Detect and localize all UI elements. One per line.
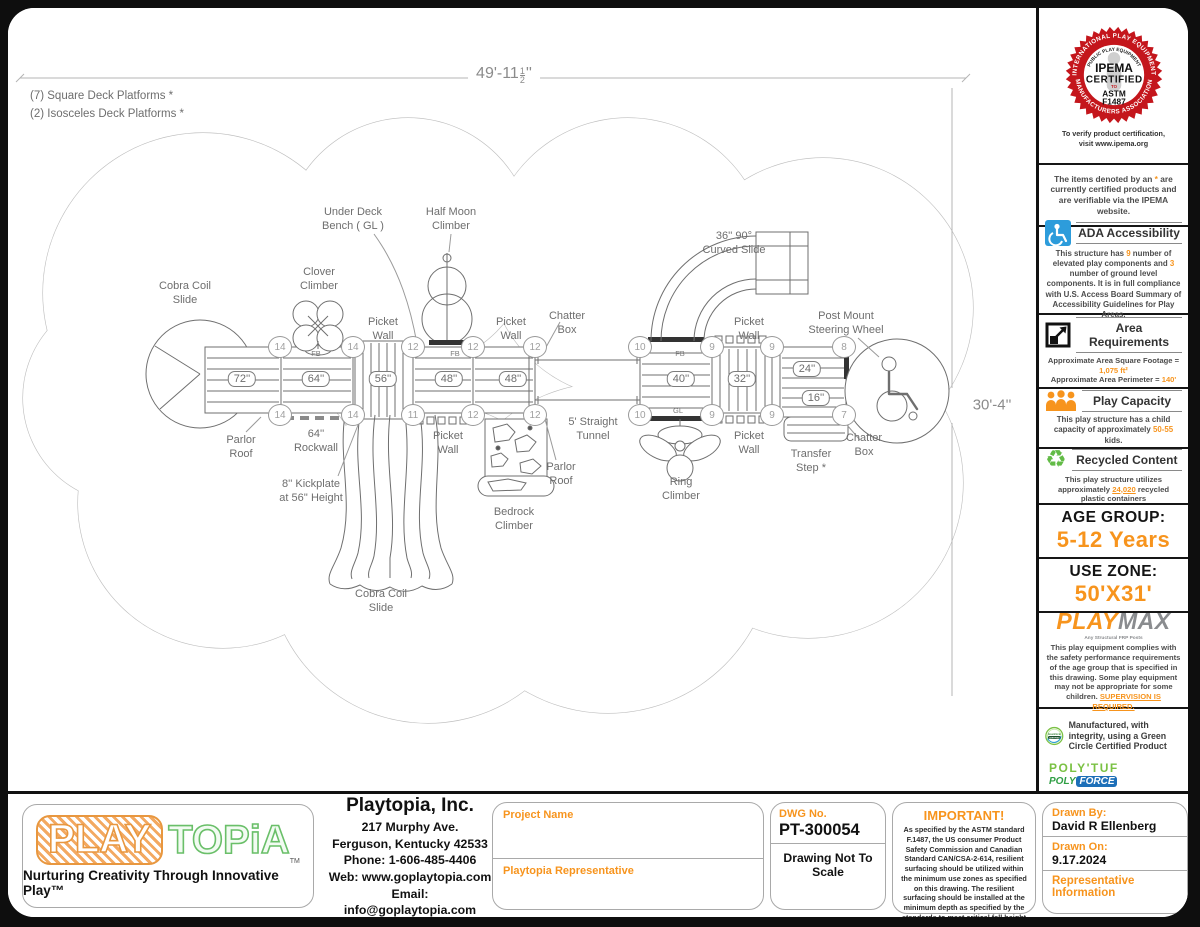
- ipema-verify-text: To verify product certification, visit w…: [1062, 129, 1165, 148]
- post-marker: 12: [523, 404, 547, 426]
- project-name-field[interactable]: Project Name: [493, 803, 763, 859]
- logo-tagline: Nurturing Creativity Through Innovative …: [23, 868, 313, 898]
- dimension-right-value: 30'-4: [973, 397, 1006, 414]
- recycle-icon: ♻: [1045, 448, 1067, 472]
- green-circle-text: Manufactured, with integrity, using a Gr…: [1069, 720, 1182, 753]
- component-label: Clover Climber: [300, 266, 338, 294]
- use-zone-section: USE ZONE: 50'X31': [1039, 559, 1188, 613]
- use-zone-value: 50'X31': [1075, 581, 1153, 607]
- company-phone: Phone: 1-606-485-4406: [344, 852, 477, 869]
- post-marker: 8: [832, 336, 856, 358]
- area-requirements-section: Area Requirements Approximate Area Squar…: [1039, 315, 1188, 389]
- plan-linework: [8, 8, 1036, 791]
- deck-size-label: 72'': [228, 371, 256, 387]
- green-circle-section: GreenCircle CERTIFIED Manufactured, with…: [1039, 709, 1188, 791]
- post-marker: 12: [461, 404, 485, 426]
- component-label: Bedrock Climber: [494, 506, 534, 534]
- dimension-top: 49'-11 1 2 '': [468, 65, 540, 83]
- post-marker: 9: [760, 336, 784, 358]
- ipema-section: INTERNATIONAL PLAY EQUIPMENT MANUFACTURE…: [1039, 8, 1188, 165]
- polyforce-logo: POLYFORCE: [1049, 776, 1117, 787]
- post-marker: 9: [700, 336, 724, 358]
- component-label: Chatter Box: [549, 310, 585, 338]
- age-group-value: 5-12 Years: [1057, 527, 1170, 553]
- ada-wheelchair-icon: [1045, 220, 1071, 246]
- component-label: Chatter Box: [846, 432, 882, 460]
- component-label: Picket Wall: [433, 430, 463, 458]
- polytuf-logo: POLY'TUF: [1049, 761, 1119, 775]
- scale-note: Drawing Not To Scale: [771, 844, 885, 886]
- component-label: Post Mount Steering Wheel: [808, 310, 883, 338]
- deck-size-label: 48'': [499, 371, 527, 387]
- company-name: Playtopia, Inc.: [346, 795, 474, 817]
- component-label: FB: [675, 349, 685, 358]
- certification-sidebar: INTERNATIONAL PLAY EQUIPMENT MANUFACTURE…: [1036, 8, 1188, 791]
- logo-trademark: TM: [290, 858, 300, 865]
- post-marker: 14: [268, 336, 292, 358]
- capacity-title: Play Capacity: [1082, 390, 1182, 412]
- component-label: 8'' Kickplate at 56'' Height: [279, 478, 343, 506]
- dwg-panel: DWG No. PT-300054 Drawing Not To Scale: [770, 802, 886, 910]
- component-label: Under Deck Bench ( GL ): [322, 206, 384, 234]
- title-block: PLAY TOPiA TM Nurturing Creativity Throu…: [8, 791, 1188, 917]
- dimension-top-fraction: 1 2: [520, 67, 525, 84]
- playmax-logo: PLAYMAX: [1056, 608, 1170, 635]
- important-title: IMPORTANT!: [900, 808, 1028, 823]
- deck-size-label: 56'': [369, 371, 397, 387]
- deck-size-label: 40'': [667, 371, 695, 387]
- component-label: FB: [311, 349, 321, 358]
- certified-items-note: The items denoted by an * are currently …: [1039, 165, 1188, 227]
- age-group-label: AGE GROUP:: [1062, 509, 1166, 527]
- company-address1: 217 Murphy Ave.: [362, 819, 459, 836]
- component-label: 36'' 90° Curved Slide: [703, 230, 766, 258]
- representative-label: Playtopia Representative: [503, 865, 753, 877]
- site-plan-drawing: (7) Square Deck Platforms * (2) Isoscele…: [8, 8, 1036, 791]
- post-marker: 10: [628, 336, 652, 358]
- recycled-content-section: ♻ Recycled Content This play structure u…: [1039, 449, 1188, 505]
- area-title: Area Requirements: [1076, 317, 1182, 353]
- component-label: GL: [673, 406, 683, 415]
- company-address2: Ferguson, Kentucky 42533: [332, 836, 488, 853]
- play-capacity-section: Play Capacity This play structure has a …: [1039, 389, 1188, 449]
- component-label: Cobra Coil Slide: [355, 588, 407, 616]
- svg-text:F1487: F1487: [1102, 97, 1126, 107]
- component-label: 64'' Rockwall: [294, 428, 338, 456]
- playtopia-logo: PLAY TOPiA TM: [36, 815, 300, 865]
- post-marker: 14: [268, 404, 292, 426]
- project-info-panel: Project Name Playtopia Representative: [492, 802, 764, 910]
- component-label: Picket Wall: [368, 316, 398, 344]
- post-marker: 14: [341, 336, 365, 358]
- component-label: Picket Wall: [496, 316, 526, 344]
- post-marker: 7: [832, 404, 856, 426]
- age-group-section: AGE GROUP: 5-12 Years: [1039, 505, 1188, 559]
- playmax-section: PLAYMAX Any Structural FRP Posts This pl…: [1039, 613, 1188, 709]
- svg-text:GreenCircle: GreenCircle: [1048, 734, 1062, 736]
- company-info: Playtopia, Inc. 217 Murphy Ave. Ferguson…: [326, 802, 494, 912]
- component-label: Cobra Coil Slide: [159, 280, 211, 308]
- logo-play-mark: PLAY: [36, 815, 163, 865]
- post-marker: 12: [461, 336, 485, 358]
- drawn-by-value: David R Ellenberg: [1052, 819, 1178, 833]
- component-label: Picket Wall: [734, 430, 764, 458]
- component-label: Parlor Roof: [546, 461, 575, 489]
- post-marker: 9: [760, 404, 784, 426]
- drawn-info-panel: Drawn By: David R Ellenberg Drawn On: 9.…: [1042, 802, 1188, 914]
- component-label: Parlor Roof: [226, 434, 255, 462]
- dwg-label: DWG No.: [779, 808, 877, 820]
- ada-accessibility-section: ADA Accessibility This structure has 9 n…: [1039, 227, 1188, 315]
- company-email: Email: info@goplaytopia.com: [326, 886, 494, 917]
- component-label: FB: [450, 349, 460, 358]
- deck-size-label: 64'': [302, 371, 330, 387]
- drawn-by-label: Drawn By:: [1052, 807, 1178, 819]
- component-label: Picket Wall: [734, 316, 764, 344]
- people-icon: [1045, 390, 1077, 412]
- deck-size-label: 48'': [435, 371, 463, 387]
- post-marker: 9: [700, 404, 724, 426]
- component-label: 5' Straight Tunnel: [568, 416, 617, 444]
- component-label: Ring Climber: [662, 476, 700, 504]
- note-isosceles-decks: (2) Isosceles Deck Platforms *: [30, 106, 184, 124]
- post-marker: 12: [523, 336, 547, 358]
- ada-title: ADA Accessibility: [1076, 222, 1182, 244]
- svg-text:CERTIFIED: CERTIFIED: [1049, 737, 1060, 739]
- project-name-label: Project Name: [503, 809, 753, 821]
- use-zone-label: USE ZONE:: [1070, 563, 1158, 581]
- recycled-title: Recycled Content: [1072, 449, 1182, 471]
- deck-size-label: 32'': [728, 371, 756, 387]
- post-marker: 11: [401, 404, 425, 426]
- component-label: Transfer Step *: [791, 448, 832, 476]
- company-web: Web: www.goplaytopia.com: [329, 869, 492, 886]
- playtopia-logo-panel: PLAY TOPiA TM Nurturing Creativity Throu…: [22, 804, 314, 908]
- ipema-certified-seal: INTERNATIONAL PLAY EQUIPMENT MANUFACTURE…: [1062, 23, 1166, 127]
- drawn-on-label: Drawn On:: [1052, 841, 1178, 853]
- post-marker: 14: [341, 404, 365, 426]
- deck-size-label: 24'': [793, 361, 821, 377]
- drawn-on-value: 9.17.2024: [1052, 853, 1178, 867]
- note-square-decks: (7) Square Deck Platforms *: [30, 88, 184, 106]
- representative-info-label: Representative Information: [1052, 875, 1178, 899]
- post-marker: 12: [401, 336, 425, 358]
- representative-field[interactable]: Playtopia Representative: [493, 859, 763, 909]
- important-body: As specified by the ASTM standard F.1487…: [900, 825, 1028, 917]
- sheet-page: (7) Square Deck Platforms * (2) Isoscele…: [8, 8, 1188, 917]
- logo-topia-mark: TOPiA: [168, 818, 290, 862]
- area-expand-icon: [1045, 322, 1071, 348]
- dwg-number: PT-300054: [779, 821, 877, 840]
- dimension-top-value: 49'-11: [476, 65, 519, 83]
- svg-text:IPEMA: IPEMA: [1095, 61, 1133, 75]
- green-circle-certified-badge: GreenCircle CERTIFIED: [1045, 713, 1064, 759]
- component-label: Half Moon Climber: [426, 206, 476, 234]
- dimension-right: 30'-4'': [970, 395, 1015, 416]
- important-notice-panel: IMPORTANT! As specified by the ASTM stan…: [892, 802, 1036, 914]
- playground-plan-sheet: { "colors":{"accent":"#F7941D","seal_red…: [0, 0, 1200, 927]
- deck-size-label: 16'': [802, 390, 830, 406]
- post-marker: 10: [628, 404, 652, 426]
- playmax-tagline: Any Structural FRP Posts: [1084, 636, 1142, 641]
- plan-notes: (7) Square Deck Platforms * (2) Isoscele…: [30, 88, 184, 124]
